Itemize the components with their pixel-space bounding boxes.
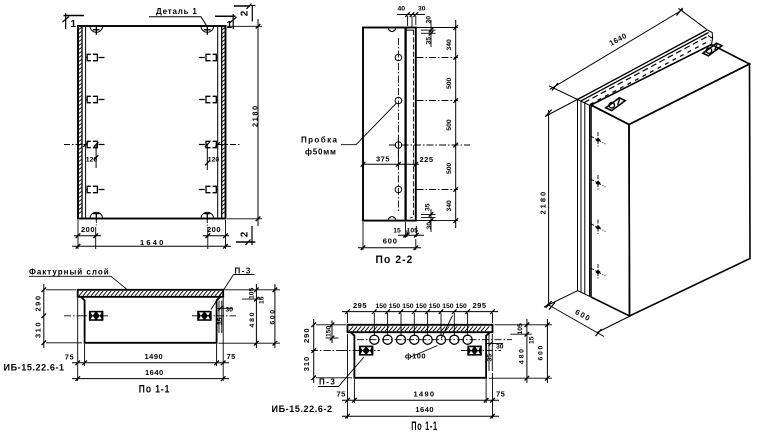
svg-text:1640: 1640 (140, 238, 166, 247)
svg-text:75: 75 (65, 352, 74, 361)
svg-text:600: 600 (270, 308, 277, 324)
svg-text:600: 600 (538, 344, 545, 360)
svg-text:480: 480 (519, 347, 526, 364)
svg-text:40: 40 (398, 6, 406, 13)
svg-text:30: 30 (426, 16, 433, 24)
svg-text:200: 200 (207, 225, 221, 234)
svg-text:ИБ-15.22.6-2: ИБ-15.22.6-2 (272, 404, 333, 414)
svg-text:375: 375 (376, 154, 390, 163)
svg-text:1640: 1640 (415, 405, 434, 414)
svg-text:1640: 1640 (145, 368, 164, 377)
svg-text:150: 150 (389, 303, 401, 310)
svg-text:150: 150 (376, 303, 388, 310)
svg-text:Пробка: Пробка (301, 136, 338, 145)
svg-text:35: 35 (426, 37, 433, 45)
svg-text:600: 600 (383, 236, 398, 245)
svg-text:По 1-1: По 1-1 (139, 383, 171, 395)
svg-text:15: 15 (258, 296, 265, 304)
svg-text:310: 310 (34, 321, 43, 338)
svg-text:30: 30 (418, 6, 426, 13)
svg-text:500: 500 (446, 162, 453, 174)
svg-text:150: 150 (456, 303, 468, 310)
svg-text:ИБ-15.22.6-1: ИБ-15.22.6-1 (4, 363, 65, 373)
svg-text:15: 15 (529, 336, 536, 344)
svg-text:75: 75 (337, 390, 346, 399)
svg-text:П-3: П-3 (235, 266, 252, 275)
svg-text:105: 105 (249, 287, 256, 299)
svg-text:Деталь 1: Деталь 1 (156, 7, 198, 16)
svg-text:П-3: П-3 (319, 378, 336, 387)
svg-text:По 1-1: По 1-1 (411, 419, 438, 433)
svg-text:Фактурный слой: Фактурный слой (29, 267, 110, 276)
svg-text:150: 150 (326, 325, 333, 337)
svg-text:340: 340 (446, 200, 453, 212)
svg-text:ф100: ф100 (405, 352, 426, 361)
svg-text:2180: 2180 (539, 190, 548, 215)
svg-text:150: 150 (442, 303, 454, 310)
svg-text:150: 150 (429, 303, 441, 310)
svg-text:480: 480 (249, 311, 256, 328)
svg-text:225: 225 (420, 155, 434, 164)
svg-text:2: 2 (240, 10, 251, 16)
svg-text:150: 150 (402, 303, 414, 310)
svg-text:200: 200 (81, 225, 95, 234)
svg-text:2180: 2180 (251, 104, 260, 127)
svg-text:105: 105 (517, 323, 524, 335)
svg-text:290: 290 (34, 294, 43, 311)
svg-text:15: 15 (393, 228, 401, 235)
svg-text:35: 35 (425, 203, 432, 211)
svg-text:35: 35 (487, 354, 494, 362)
svg-text:1490: 1490 (145, 352, 164, 361)
svg-text:1: 1 (71, 19, 77, 30)
svg-text:290: 290 (302, 327, 311, 343)
svg-text:105: 105 (407, 228, 419, 235)
svg-text:120: 120 (86, 157, 98, 164)
svg-text:30: 30 (226, 306, 234, 313)
svg-text:295: 295 (473, 301, 487, 310)
svg-text:ф50мм: ф50мм (305, 148, 337, 157)
svg-text:75: 75 (227, 352, 236, 361)
svg-text:295: 295 (353, 301, 367, 310)
svg-text:150: 150 (416, 303, 428, 310)
svg-text:30: 30 (496, 344, 504, 351)
svg-text:1490: 1490 (414, 389, 436, 398)
svg-text:120: 120 (208, 157, 220, 164)
svg-text:310: 310 (302, 356, 311, 372)
svg-text:30: 30 (426, 222, 433, 230)
svg-text:1: 1 (227, 20, 233, 31)
svg-text:500: 500 (446, 77, 453, 89)
svg-text:75: 75 (496, 389, 505, 398)
svg-text:2: 2 (239, 231, 250, 237)
svg-text:340: 340 (446, 39, 453, 51)
svg-text:500: 500 (446, 119, 453, 131)
svg-text:По 2-2: По 2-2 (376, 254, 414, 266)
